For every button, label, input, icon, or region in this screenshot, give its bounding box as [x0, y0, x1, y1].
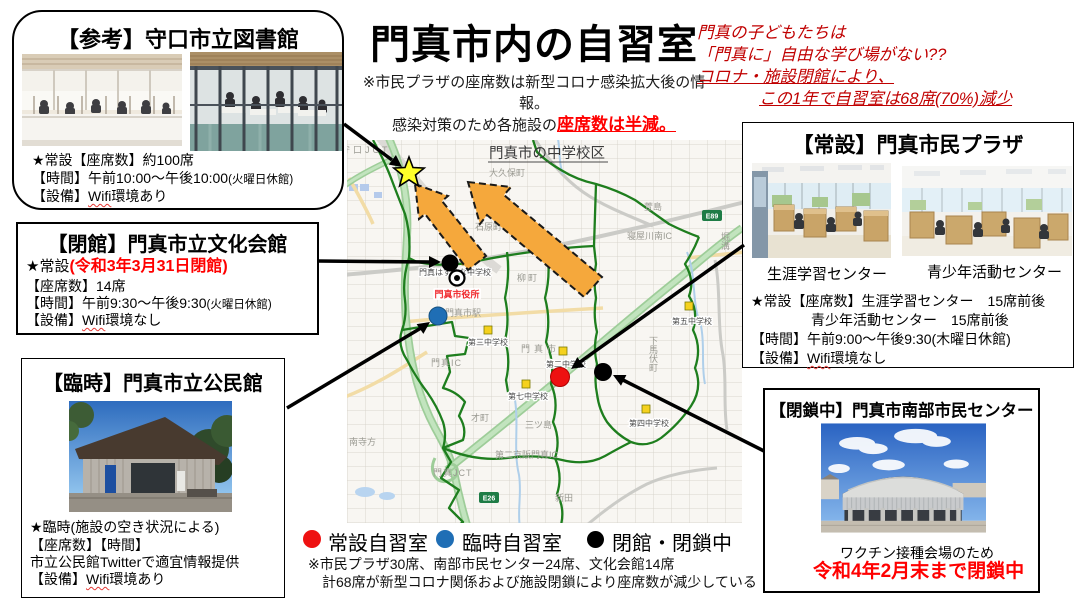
- panel-shimin-plaza: 【常設】門真市民プラザ 生涯学習センター 青少年活動センター ★常設【座席数】生…: [742, 122, 1074, 368]
- legend-dot-permanent: [303, 530, 321, 548]
- svg-text:第二中学校: 第二中学校: [546, 359, 586, 369]
- photo-lifelong-learning-center: [752, 163, 891, 258]
- legend-label-temporary: 臨時自習室: [462, 527, 562, 556]
- kominkan-seats-time: 【座席数】【時間】: [30, 537, 149, 555]
- marker-closed-bunka: [442, 255, 459, 272]
- svg-text:三ツ島: 三ツ島: [525, 419, 552, 430]
- plaza-seats1: ★常設【座席数】生涯学習センター 15席前後: [751, 293, 1045, 311]
- svg-text:門真JCT: 門真JCT: [433, 467, 473, 478]
- library-seats: ★常設【座席数】約100席: [32, 152, 194, 170]
- kominkan-wifi: Wifi: [86, 571, 109, 587]
- svg-text:第七中学校: 第七中学校: [508, 391, 548, 401]
- map-shield-e89: E89: [702, 210, 722, 221]
- panel-nanbu-center: 【閉鎖中】門真市南部市民センター ワクチン接種会場のため 令和4年2月末まで閉鎖…: [763, 388, 1040, 593]
- bunka-equip-prefix: 【設備】: [26, 312, 82, 328]
- legend-label-closed: 閉館・閉鎖中: [612, 527, 732, 556]
- svg-text:門真IC: 門真IC: [431, 357, 462, 368]
- svg-text:大久保町: 大久保町: [489, 167, 525, 178]
- library-wifi: Wifi: [88, 188, 111, 204]
- map-shield-e26: E26: [479, 492, 499, 503]
- svg-text:柳町: 柳町: [517, 272, 539, 283]
- headline-line2: 「門真に」自由な学び場がない??: [697, 44, 1077, 66]
- library-equip: 【設備】Wifi環境あり: [32, 188, 167, 206]
- slide-kadoma-study-rooms: { "page": { "title": "門真市内の自習室" }, "subn…: [0, 0, 1078, 605]
- map-pond: [379, 492, 395, 500]
- plaza-hours: 【時間】午前9:00〜午後9:30(木曜日休館): [751, 331, 1011, 349]
- svg-text:第三中学校: 第三中学校: [468, 337, 508, 347]
- photo-kominkan-building: [69, 401, 232, 512]
- plaza-equip: 【設備】Wifi環境なし: [751, 350, 886, 368]
- bunka-equip: 【設備】Wifi環境なし: [26, 312, 161, 330]
- kominkan-equip: 【設備】Wifi環境あり: [30, 571, 165, 589]
- title-note-line2: 感染対策のため各施設の座席数は半減。: [352, 114, 716, 136]
- svg-text:E26: E26: [483, 496, 496, 503]
- library-equip-suffix: 環境あり: [111, 188, 167, 204]
- plaza-caption-left: 生涯学習センター: [767, 263, 887, 284]
- bunka-seats: 【座席数】14席: [26, 278, 126, 296]
- nanbu-reason: ワクチン接種会場のため: [840, 545, 994, 563]
- title-note: ※市民プラザの座席数は新型コロナ感染拡大後の情報。 感染対策のため各施設の座席数…: [352, 72, 716, 136]
- map-highways: [347, 140, 742, 523]
- svg-text:下馬伏町: 下馬伏町: [648, 336, 658, 372]
- footnote: ※市民プラザ30席、南部市民センター24席、文化会館14席 計68席が新型コロナ…: [308, 556, 757, 591]
- plaza-wifi: Wifi: [807, 350, 830, 366]
- panel-bunka-kaikan: 【閉館】門真市立文化会館 ★常設(令和3年3月31日閉館) 【座席数】14席 【…: [16, 222, 319, 335]
- title-note-line2-red: 座席数は半減。: [557, 115, 676, 134]
- svg-text:堀溝: 堀溝: [720, 232, 730, 251]
- bunka-hours-note: (火曜日休館): [207, 299, 272, 311]
- library-hours-main: 【時間】午前10:00〜午後10:00: [32, 170, 228, 186]
- legend-dot-temporary: [436, 530, 454, 548]
- headline-red-text: 門真の子どもたちは 「門真に」自由な学び場がない?? コロナ・施設閉館により、 …: [697, 22, 1077, 110]
- plaza-title: 【常設】門真市民プラザ: [743, 129, 1073, 159]
- photo-nanbu-building: [821, 419, 986, 537]
- nanbu-title: 【閉鎖中】門真市南部市民センター: [765, 397, 1038, 421]
- kominkan-status: ★臨時(施設の空き状況による): [30, 519, 219, 537]
- svg-text:第二京阪門真IC: 第二京阪門真IC: [495, 449, 559, 460]
- kominkan-equip-prefix: 【設備】: [30, 571, 86, 587]
- kadoma-map-svg: 守口JCT 大久保町 石原町 柳町 萱島 寝屋川南IC 堀溝 下馬伏町 門真市 …: [347, 140, 742, 523]
- city-hall-label: 門真市役所: [434, 289, 479, 300]
- svg-text:寝屋川南IC: 寝屋川南IC: [627, 230, 673, 241]
- headline-line4: この1年で自習室は68席(70%)減少: [759, 88, 1077, 110]
- bunka-status: ★常設(令和3年3月31日閉館): [26, 258, 228, 276]
- title-note-line1: ※市民プラザの座席数は新型コロナ感染拡大後の情報。: [352, 72, 716, 114]
- legend-label-permanent: 常設自習室: [328, 527, 428, 556]
- svg-text:守口JCT: 守口JCT: [347, 144, 391, 155]
- headline-line3: コロナ・施設閉館により、: [697, 66, 1077, 88]
- kominkan-title: 【臨時】門真市立公民館: [22, 367, 284, 396]
- library-hours-note: (火曜日休館): [228, 174, 293, 186]
- library-title: 【参考】守口市立図書館: [14, 22, 342, 54]
- title-note-line2-black: 感染対策のため各施設の: [392, 117, 557, 134]
- plaza-equip-suffix: 環境なし: [830, 350, 886, 366]
- marker-permanent-plaza: [551, 368, 570, 387]
- svg-text:門真市: 門真市: [521, 343, 560, 354]
- page-title: 門真市内の自習室: [360, 12, 708, 70]
- svg-text:E89: E89: [706, 214, 719, 221]
- svg-text:南寺方: 南寺方: [349, 436, 376, 447]
- kominkan-equip-suffix: 環境あり: [109, 571, 165, 587]
- map-title: 門真市の中学校区: [489, 144, 605, 162]
- library-equip-prefix: 【設備】: [32, 188, 88, 204]
- bunka-hours-main: 【時間】午前9:30〜午後9:30: [26, 295, 207, 311]
- headline-line1: 門真の子どもたちは: [697, 22, 1077, 44]
- svg-text:才町: 才町: [471, 412, 489, 423]
- map-title-group: 門真市の中学校区: [488, 144, 608, 162]
- map-pond: [355, 487, 375, 497]
- photo-youth-activity-center: [902, 166, 1072, 256]
- footnote-line2: 計68席が新型コロナ関係および施設閉鎖により座席数が減少している: [308, 574, 757, 592]
- library-hours: 【時間】午前10:00〜午後10:00(火曜日休館): [32, 170, 293, 190]
- svg-text:門真市駅: 門真市駅: [445, 307, 481, 318]
- marker-closed-nanbu: [594, 363, 612, 381]
- bunka-wifi: Wifi: [82, 312, 105, 328]
- svg-text:第四中学校: 第四中学校: [629, 418, 669, 428]
- panel-moriguchi-library: 【参考】守口市立図書館: [12, 10, 344, 210]
- legend-dot-closed: [587, 531, 604, 548]
- marker-temporary-kominkan: [429, 307, 447, 325]
- photo-library-interior: [22, 54, 182, 146]
- panel-kominkan: 【臨時】門真市立公民館 ★臨時(施設の空き状況による) 【座席数】【時間】 市立…: [21, 358, 285, 598]
- bunka-status-red: (令和3年3月31日閉館): [69, 258, 227, 275]
- kadoma-map: 守口JCT 大久保町 石原町 柳町 萱島 寝屋川南IC 堀溝 下馬伏町 門真市 …: [347, 140, 742, 523]
- plaza-caption-right: 青少年活動センター: [927, 261, 1062, 282]
- svg-text:萱島: 萱島: [644, 201, 662, 212]
- plaza-seats2: 青少年活動センター 15席前後: [811, 312, 1009, 330]
- bunka-status-black: ★常設: [26, 258, 69, 275]
- bunka-title: 【閉館】門真市立文化会館: [18, 228, 317, 257]
- plaza-equip-prefix: 【設備】: [751, 350, 807, 366]
- svg-text:新田: 新田: [555, 492, 573, 503]
- svg-text:第五中学校: 第五中学校: [672, 316, 712, 326]
- kominkan-twitter: 市立公民館Twitterで適宜情報提供: [30, 554, 239, 572]
- footnote-line1: ※市民プラザ30席、南部市民センター24席、文化会館14席: [308, 556, 757, 574]
- bunka-equip-suffix: 環境なし: [105, 312, 161, 328]
- photo-library-glass-room: [190, 52, 342, 151]
- nanbu-closed-until: 令和4年2月末まで閉鎖中: [813, 563, 1024, 581]
